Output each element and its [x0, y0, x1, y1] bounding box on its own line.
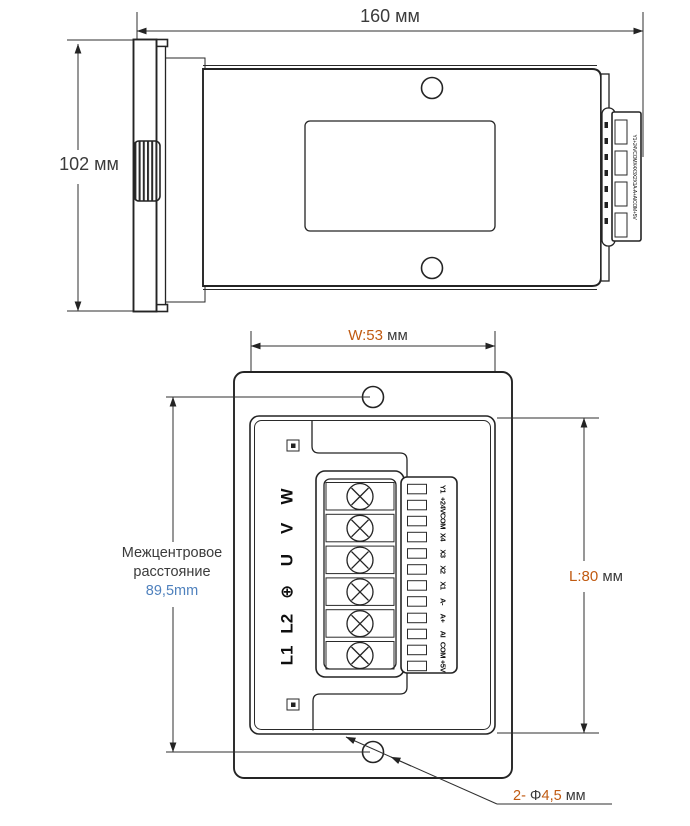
phase-label-L2: L2	[278, 614, 297, 634]
terminal-screw[interactable]	[347, 484, 373, 510]
terminal-screw[interactable]	[347, 643, 373, 669]
terminal-block	[316, 471, 404, 677]
dim-102-label: 102 мм	[59, 154, 119, 174]
dim-w53-label: W:53 мм	[348, 327, 408, 344]
terminal-screw[interactable]	[347, 611, 373, 637]
phase-label-V: V	[278, 522, 297, 534]
terminal-screw[interactable]	[347, 579, 373, 605]
drawing-canvas: 160 мм 102 мм	[0, 0, 690, 826]
io-strip-outline	[401, 477, 457, 673]
io-label-X4: X4	[439, 533, 448, 543]
io-label-A-: A-	[439, 598, 448, 606]
mounting-collar	[165, 58, 205, 302]
panel-screw-bottom	[287, 699, 299, 710]
front-view: W:53 мм	[122, 327, 623, 804]
phase-label-W: W	[278, 488, 297, 505]
bezel-tab-top	[157, 40, 168, 47]
front-bezel	[134, 40, 168, 312]
center-distance-line1: Межцентровое	[122, 545, 223, 561]
io-label-X2: X2	[439, 565, 448, 574]
io-label-X1: X1	[439, 581, 448, 590]
dimension-l80: L:80 мм	[497, 418, 623, 733]
io-label-COM1: COM	[439, 513, 448, 529]
side-connector-labels: Y1+24VCOMX4X3X2X1A-A+AICOM+5V	[631, 135, 637, 221]
phase-label-L1: L1	[278, 646, 297, 666]
side-connector: Y1+24VCOMX4X3X2X1A-A+AICOM+5V	[601, 74, 641, 281]
panel-screw-top	[287, 440, 299, 451]
earth-symbol: ⊕	[278, 585, 297, 599]
hole-note-label: 2- Φ4,5 мм	[513, 788, 586, 804]
body-hole-top	[422, 78, 443, 99]
io-label-A+: A+	[439, 614, 448, 624]
bezel-tab-bottom	[157, 305, 168, 312]
adjustment-knob[interactable]	[134, 141, 160, 201]
io-label-5V: +5V	[439, 660, 448, 673]
dim-160-label: 160 мм	[360, 6, 420, 26]
center-distance-value: 89,5mm	[146, 583, 198, 599]
io-label-X3: X3	[439, 549, 448, 558]
io-strip: Y1 +24V COM X4 X3 X2 X1 A- A+ AI COM +5V	[401, 477, 457, 673]
io-label-24V: +24V	[439, 497, 448, 514]
technical-drawing-page: 160 мм 102 мм	[0, 0, 690, 826]
io-label-Y1: Y1	[439, 485, 448, 494]
center-distance-line2: расстояние	[133, 564, 210, 580]
dim-l80-label: L:80 мм	[569, 568, 623, 585]
phase-label-U: U	[278, 554, 297, 566]
terminal-screw[interactable]	[347, 515, 373, 541]
dimension-102: 102 мм	[59, 40, 133, 311]
nameplate-cutout	[305, 121, 495, 231]
io-label-AI: AI	[439, 631, 448, 638]
io-label-COM2: COM	[439, 642, 448, 658]
top-view: 160 мм 102 мм	[59, 6, 643, 312]
body-hole-bottom	[422, 258, 443, 279]
terminal-screw[interactable]	[347, 547, 373, 573]
